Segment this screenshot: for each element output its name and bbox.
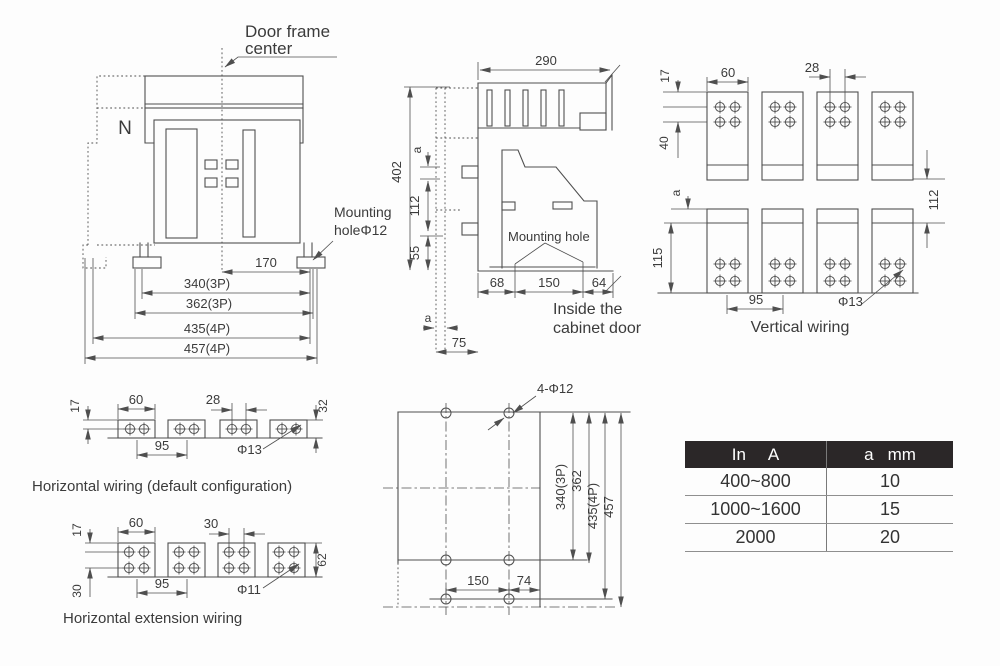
horizontal-wiring-view: 17 60 28 32 95 Φ13 Horizontal wiring (de…: [32, 392, 330, 495]
table-header-a-mm: a mm: [827, 441, 953, 468]
dim-64: 64: [592, 275, 606, 290]
vw-dim-95: 95: [749, 292, 763, 307]
horizontal-extension-bolt-holes: [123, 546, 301, 575]
dim-68: 68: [490, 275, 504, 290]
dp-dim-340-3p: 340(3P): [553, 464, 568, 510]
dim-435-4p: 435(4P): [184, 321, 230, 336]
header-a-unit: A: [768, 445, 779, 465]
dp-dim-457: 457: [601, 496, 616, 518]
dim-290: 290: [535, 53, 557, 68]
table-row: 2000 20: [685, 524, 953, 552]
dim-402: 402: [389, 161, 404, 183]
dim-a-upper: a: [410, 146, 424, 153]
vertical-wiring-caption: Vertical wiring: [751, 319, 850, 336]
drilling-plan-dimensions: 340(3P) 362 435(4P) 457 150 74: [446, 413, 621, 607]
cabinet-door-dashed-lines: [436, 88, 478, 352]
horizontal-wiring-bolt-holes: [124, 423, 303, 436]
vw-dim-112: 112: [926, 190, 941, 211]
vw-dim-a: a: [669, 189, 683, 196]
breaker-dimension-drawing: Door frame center N Mounting holeΦ12 170…: [0, 0, 1000, 666]
current-selection-table: In A a mm 400~800 10 1000~1600 15 2000 2…: [685, 441, 953, 552]
he-dim-phi11: Φ11: [237, 582, 261, 597]
horizontal-extension-dimensions: 17 30 60 30 62 95 Φ11: [70, 515, 329, 598]
mounting-hole-label-line2: holeΦ12: [334, 222, 387, 238]
front-view-dimensions: 170 340(3P) 362(3P) 435(4P) 457(4P): [85, 255, 317, 364]
drilling-plan-view: 4-Φ12 340(3P) 362 435(4P) 457 150 74: [383, 381, 630, 615]
header-in: In: [732, 445, 746, 465]
horizontal-extension-wiring-view: 17 30 60 30 62 95 Φ11 Horizontal extensi…: [63, 515, 329, 627]
hw-dim-phi13: Φ13: [237, 442, 262, 457]
header-mm: mm: [888, 445, 916, 465]
vw-dim-28: 28: [805, 60, 819, 75]
dim-362-3p: 362(3P): [186, 296, 232, 311]
table-cell-a-value: 15: [827, 496, 953, 523]
dp-dim-362: 362: [569, 470, 584, 492]
hw-dim-28: 28: [206, 392, 220, 407]
vw-dim-60: 60: [721, 65, 735, 80]
table-cell-a-value: 10: [827, 468, 953, 495]
inside-cabinet-door-label-line1: Inside the: [553, 301, 622, 318]
table-cell-a-value: 20: [827, 524, 953, 551]
dim-55: 55: [407, 246, 422, 260]
horizontal-extension-busbars: [108, 543, 322, 577]
he-dim-17: 17: [70, 523, 84, 537]
table-cell-in-range: 400~800: [685, 468, 827, 495]
vertical-wiring-view: 17 40 60 28 112 a 115 95 Φ13 Ve: [650, 60, 945, 336]
he-dim-60: 60: [129, 515, 143, 530]
dim-170: 170: [255, 255, 277, 270]
hw-dim-32: 32: [316, 399, 330, 413]
hw-dim-17: 17: [68, 399, 82, 413]
table-cell-in-range: 2000: [685, 524, 827, 551]
side-view: Mounting hole 290 402 a 112 55: [389, 53, 642, 352]
hole-callout-4-phi12: 4-Φ12: [537, 381, 573, 396]
header-a: a: [864, 445, 873, 465]
table-header-in-a: In A: [685, 441, 827, 468]
neutral-pole-dashed-outline: [83, 76, 155, 268]
hole-callout-leader-line: [513, 396, 536, 413]
door-frame-label-line2: center: [245, 39, 293, 58]
dim-150-side: 150: [538, 275, 560, 290]
mounting-hole-label-line1: Mounting: [334, 204, 392, 220]
hw-dim-95: 95: [155, 438, 169, 453]
horizontal-wiring-dimensions: 17 60 28 32 95 Φ13: [68, 392, 330, 459]
he-dim-30-left: 30: [70, 584, 84, 598]
dp-dim-150: 150: [467, 573, 489, 588]
neutral-pole-label: N: [118, 118, 132, 139]
vw-dim-40: 40: [657, 136, 671, 150]
table-header-row: In A a mm: [685, 441, 953, 468]
horizontal-wiring-caption: Horizontal wiring (default configuration…: [32, 478, 292, 495]
table-cell-in-range: 1000~1600: [685, 496, 827, 523]
dim-457-4p: 457(4P): [184, 341, 230, 356]
dim-a-lower: a: [425, 311, 432, 325]
he-dim-30-top: 30: [204, 516, 218, 531]
he-dim-62: 62: [315, 553, 329, 567]
vw-dim-115: 115: [650, 248, 665, 269]
front-view: Door frame center N Mounting holeΦ12 170…: [83, 22, 392, 364]
dim-340-3p: 340(3P): [184, 276, 230, 291]
dim-75: 75: [452, 335, 466, 350]
table-row: 400~800 10: [685, 468, 953, 496]
hw-dim-60: 60: [129, 392, 143, 407]
hole-callout-leader-line2: [488, 418, 504, 430]
horizontal-extension-caption: Horizontal extension wiring: [63, 610, 242, 627]
vertical-wiring-dimensions: 17 40 60 28 112 a 115 95 Φ13: [650, 60, 945, 314]
dim-112-side: 112: [407, 196, 422, 217]
diagram-canvas: Door frame center N Mounting holeΦ12 170…: [0, 0, 1000, 666]
side-mounting-hole-label: Mounting hole: [508, 229, 590, 244]
dp-dim-435-4p: 435(4P): [585, 483, 600, 529]
vw-dim-17: 17: [658, 69, 672, 83]
door-frame-leader-line: [225, 57, 337, 67]
he-dim-95: 95: [155, 576, 169, 591]
dp-dim-74: 74: [517, 573, 531, 588]
vw-dim-phi13: Φ13: [838, 294, 863, 309]
inside-cabinet-door-label-line2: cabinet door: [553, 320, 642, 337]
breaker-front-outline: [133, 76, 325, 268]
vertical-wiring-bolt-holes: [714, 101, 907, 288]
table-row: 1000~1600 15: [685, 496, 953, 524]
mounting-hole-pointer-lines: [515, 243, 583, 264]
